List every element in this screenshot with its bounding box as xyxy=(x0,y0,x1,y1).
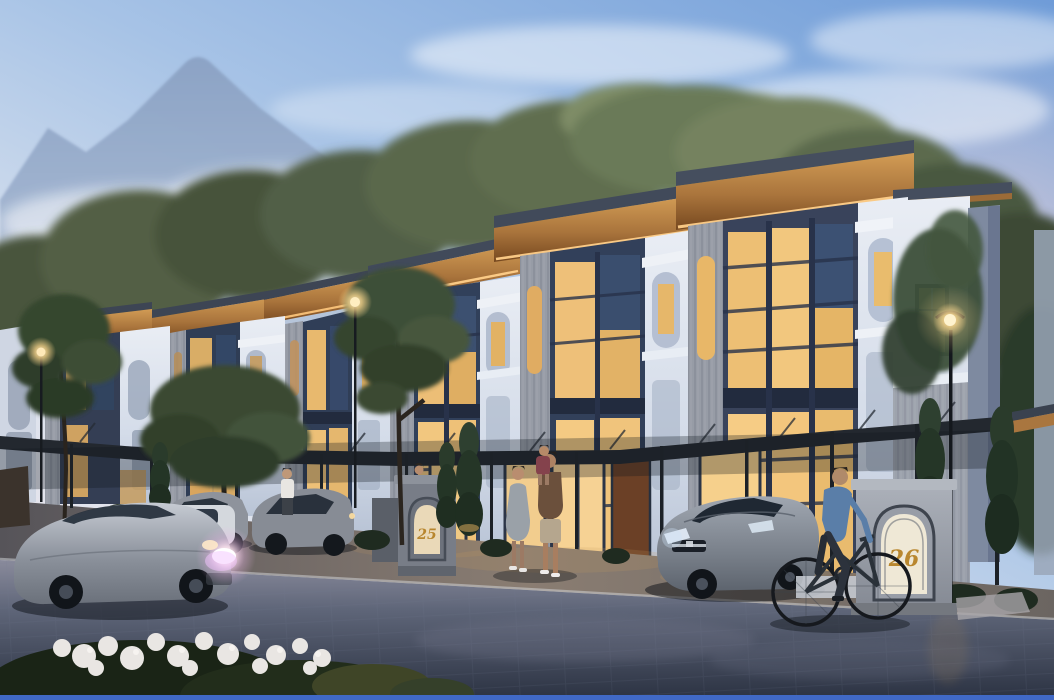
shoe xyxy=(540,570,549,574)
shoe xyxy=(551,573,560,577)
window-pane-warm xyxy=(555,262,595,398)
shrub xyxy=(354,530,390,550)
house-number-25: 25 xyxy=(416,527,436,543)
person-leg xyxy=(543,543,548,571)
person-head xyxy=(415,466,424,475)
child-head xyxy=(539,446,549,456)
arch-niche xyxy=(128,360,150,420)
pillar-base xyxy=(398,566,456,576)
flower xyxy=(292,638,308,654)
lamp-head xyxy=(944,314,956,326)
window-pane-dark xyxy=(814,224,853,308)
person-legs xyxy=(282,498,293,515)
pillar-cap xyxy=(851,479,957,490)
headlight-magenta xyxy=(205,551,237,571)
person-leg xyxy=(520,541,524,569)
flower xyxy=(217,643,239,665)
foliage-mass xyxy=(26,378,94,418)
man-shorts xyxy=(540,519,561,543)
wheel-hub xyxy=(785,572,795,582)
headlight-upper xyxy=(202,540,218,550)
architectural-render: 25 xyxy=(0,0,1054,700)
floor-slab xyxy=(303,412,352,424)
niche-window-warm xyxy=(874,252,892,306)
shrub xyxy=(602,548,630,564)
flower xyxy=(53,639,71,657)
bottom-border-strip xyxy=(0,695,1054,700)
cypress xyxy=(455,422,483,536)
wheel-hub xyxy=(696,578,708,590)
post xyxy=(490,452,493,542)
pier-arch-window xyxy=(290,340,299,396)
niche-window-warm xyxy=(658,284,674,334)
uplight xyxy=(459,524,479,532)
foliage-mass xyxy=(170,436,280,488)
pier-arch-window xyxy=(527,286,542,374)
car-wheel xyxy=(323,534,345,556)
cyclist-shoe xyxy=(832,596,844,601)
lamp-pole xyxy=(40,352,43,502)
person-torso xyxy=(281,479,294,499)
lamp-pole xyxy=(354,302,357,508)
wheel-hub xyxy=(59,585,73,599)
flower xyxy=(244,634,260,650)
person-leg xyxy=(553,543,558,573)
window-pane-warm xyxy=(307,330,326,410)
flower xyxy=(266,645,286,665)
flower xyxy=(303,661,317,675)
flower xyxy=(120,646,144,670)
child-body xyxy=(536,456,550,475)
flower xyxy=(147,633,165,651)
shrub xyxy=(480,539,512,557)
cypress xyxy=(436,442,458,528)
flower xyxy=(195,632,213,650)
road-sheen xyxy=(415,618,755,662)
child-leg xyxy=(538,474,542,485)
cypress xyxy=(985,406,1019,554)
lamp-head xyxy=(350,297,360,307)
flower xyxy=(88,660,104,676)
person-leg xyxy=(512,541,516,567)
cloud xyxy=(410,25,790,85)
person-head xyxy=(282,469,292,479)
parked-car-sliver xyxy=(0,466,30,528)
flower xyxy=(98,636,118,656)
floor-slab xyxy=(723,388,858,408)
woman-dress xyxy=(506,483,530,541)
headlight-glow xyxy=(662,528,682,548)
cypress xyxy=(149,442,171,512)
niche-window-warm xyxy=(491,322,505,366)
flower xyxy=(252,658,268,674)
lamp-reflection xyxy=(928,612,968,684)
child-leg xyxy=(545,474,549,485)
honda-emblem xyxy=(686,541,693,547)
car-wheel xyxy=(265,533,287,555)
foliage-mass xyxy=(356,382,408,414)
flower xyxy=(182,660,198,676)
post xyxy=(575,452,578,549)
cyclist-head xyxy=(832,469,848,485)
people-shadow xyxy=(493,569,577,583)
gate-wall xyxy=(372,498,400,562)
car-headlight xyxy=(349,513,355,519)
post xyxy=(70,444,73,508)
shoe xyxy=(519,568,527,572)
person-head xyxy=(512,468,524,480)
scene-canvas: 25 xyxy=(0,0,1054,700)
foliage-mass xyxy=(62,340,122,384)
pier-arch-window xyxy=(697,256,715,360)
lamp-head xyxy=(37,348,46,357)
wheel-hub xyxy=(189,579,203,593)
shoe xyxy=(509,566,517,570)
glass-wall xyxy=(1034,230,1054,575)
